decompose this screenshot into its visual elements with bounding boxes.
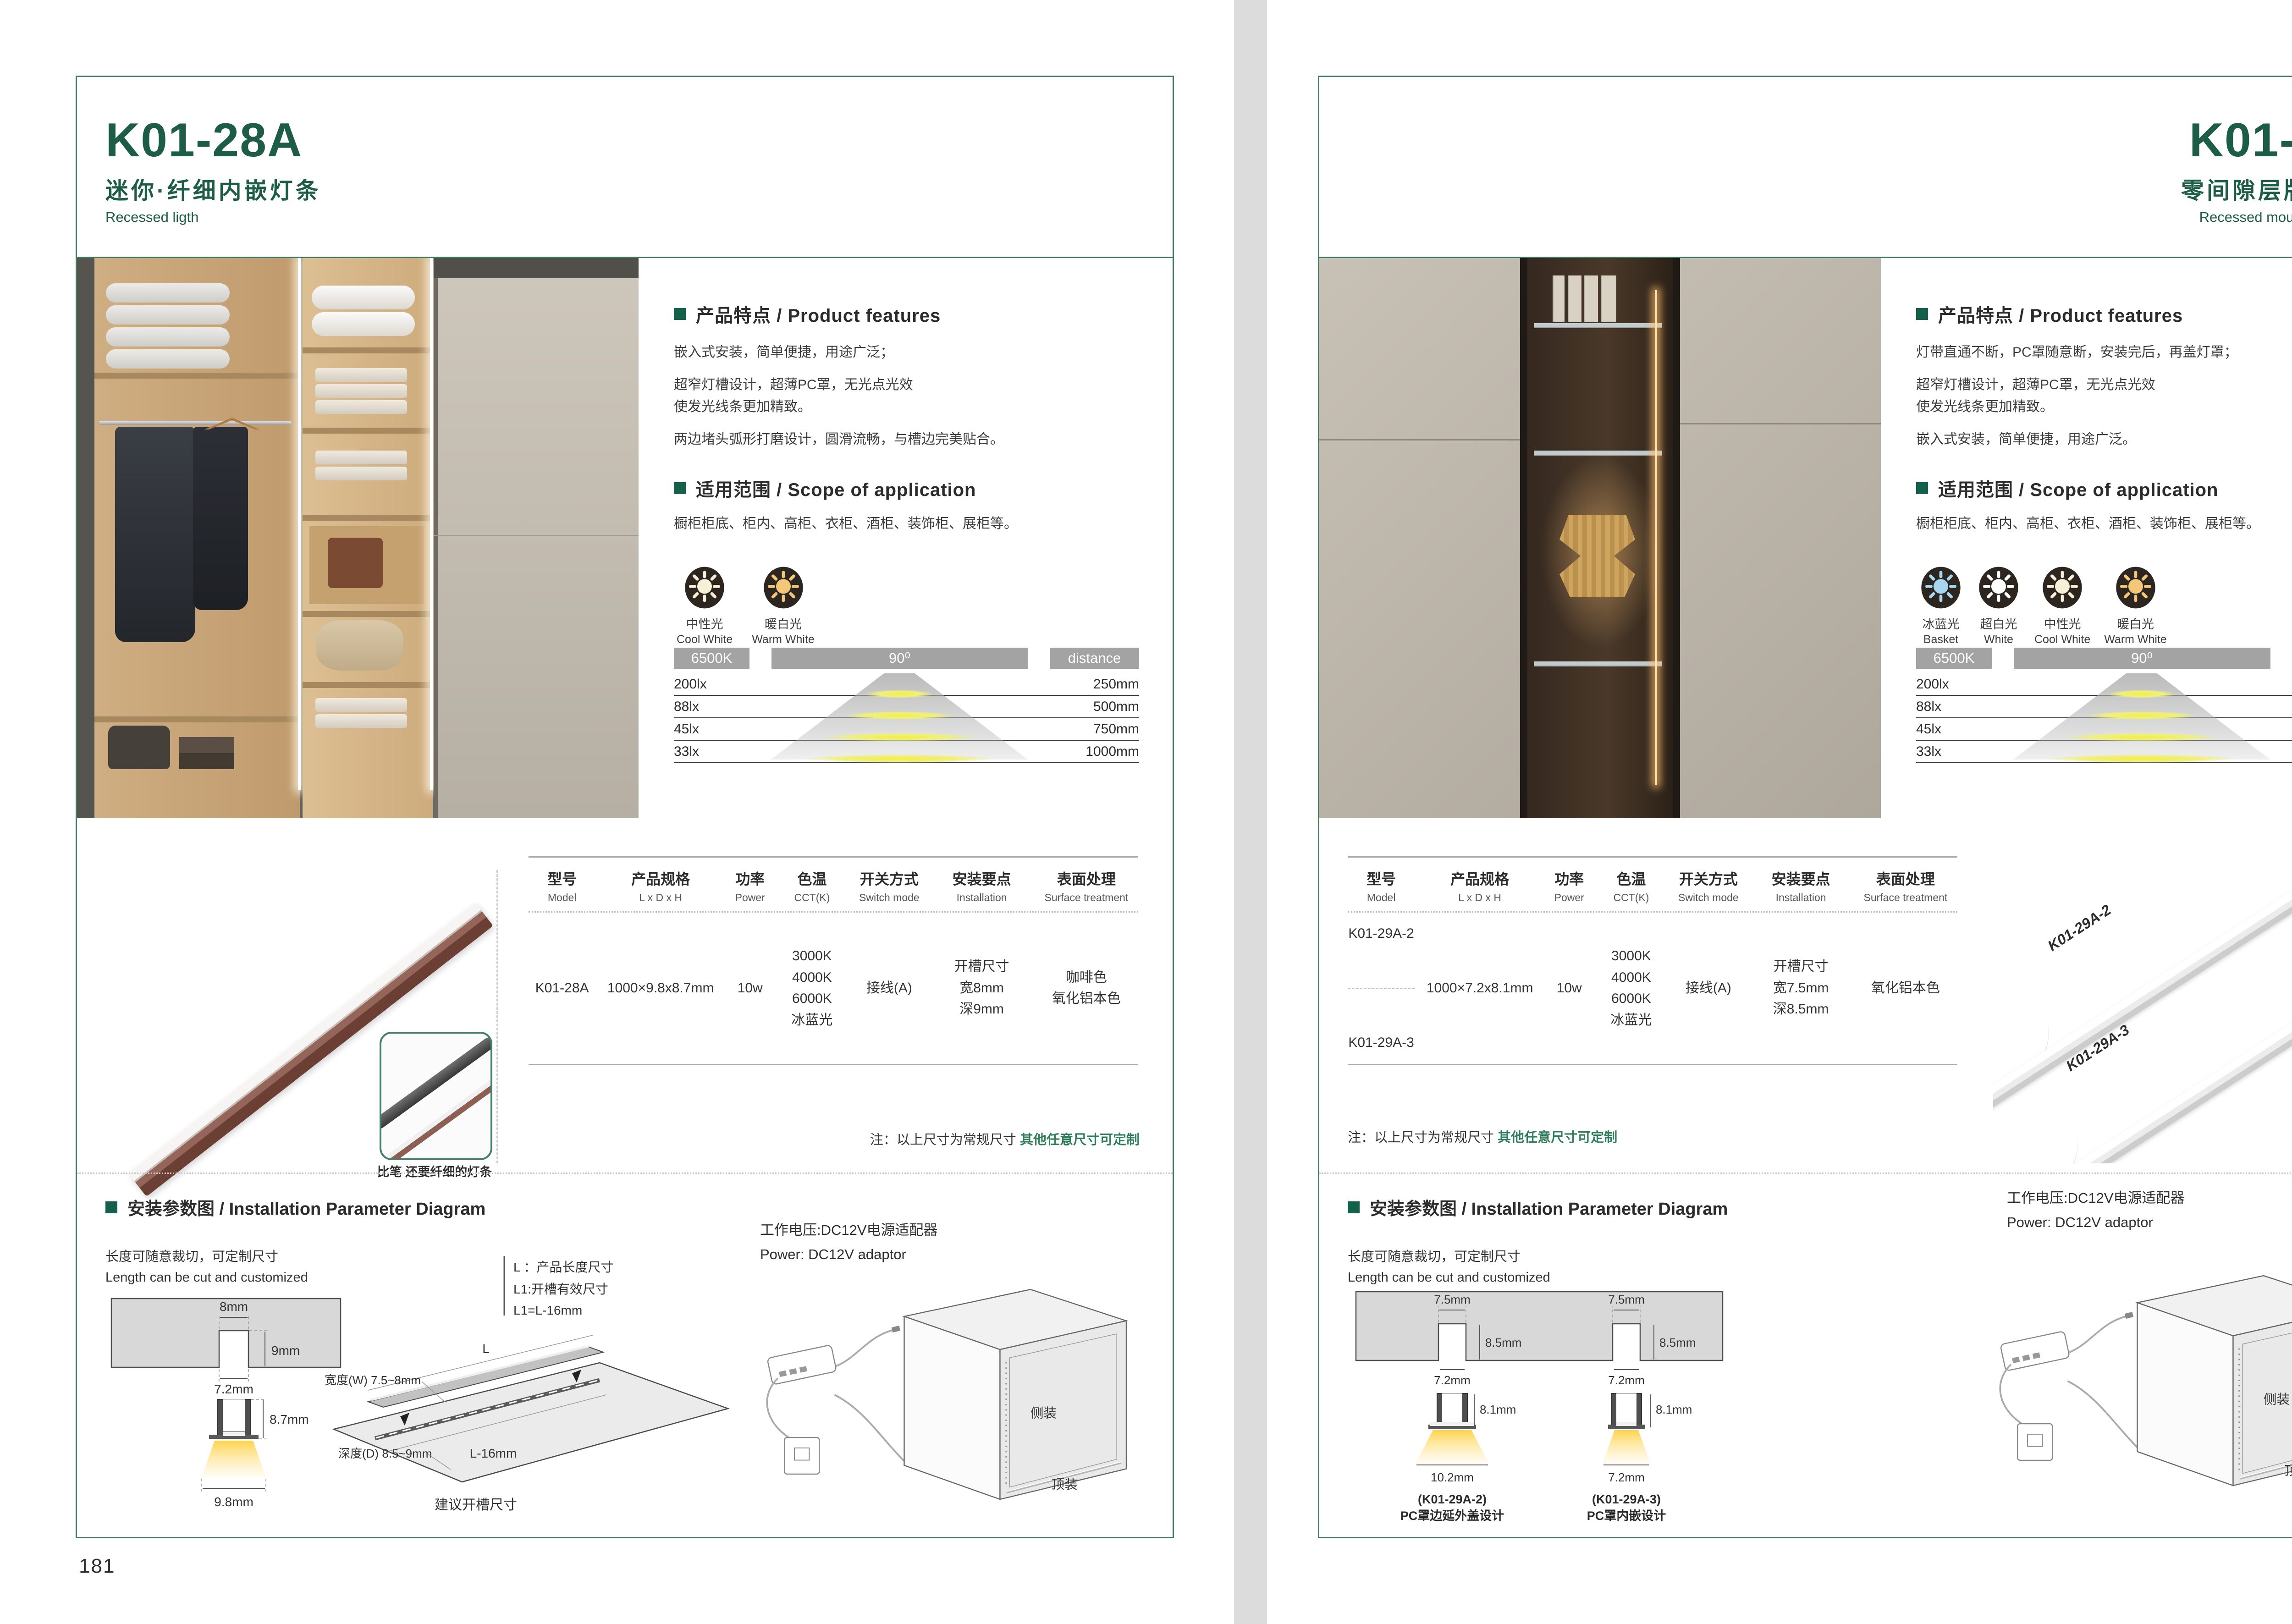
svg-text:L ：产品长度尺寸: L ：产品长度尺寸 bbox=[513, 1260, 613, 1274]
page-title: K01-29A bbox=[2181, 116, 2292, 164]
spec-row: K01-28A 1000×9.8x8.7mm 10w 3000K4000K 60… bbox=[529, 913, 1138, 1065]
bulb-icon bbox=[1977, 566, 2021, 610]
svg-text:8.5mm: 8.5mm bbox=[1659, 1336, 1696, 1349]
icon-label-cn: 中性光 bbox=[2034, 614, 2090, 632]
spec-row: K01-29A-2 K01-29A-3 1000×7.2x8.1mm 10w 3… bbox=[1348, 913, 1957, 1065]
svg-text:PC罩边延外盖设计: PC罩边延外盖设计 bbox=[1400, 1509, 1504, 1523]
icon-label-en: Cool White bbox=[2034, 633, 2090, 646]
svg-text:PC罩内嵌设计: PC罩内嵌设计 bbox=[1587, 1509, 1666, 1523]
light-color-icons: 冰蓝光 Basket 超白光 White 中性光 Cool White 暖白光 … bbox=[1919, 566, 2186, 646]
svg-text:深度(D) 8.5~9mm: 深度(D) 8.5~9mm bbox=[338, 1447, 432, 1460]
product-photo bbox=[77, 258, 639, 818]
svg-text:7.5mm: 7.5mm bbox=[1434, 1293, 1470, 1306]
cct-bar: 6500K bbox=[1916, 648, 1992, 669]
bulb-icon bbox=[1919, 566, 1963, 610]
features-text: 灯带直通不断，PC罩随意断，安装完后，再盖灯罩； 超窄灯槽设计，超薄PC罩，无光… bbox=[1916, 342, 2292, 450]
install-title: 安装参数图 / Installation Parameter Diagram bbox=[105, 1195, 485, 1220]
install-title: 安装参数图 / Installation Parameter Diagram bbox=[1348, 1195, 1728, 1220]
scope-text: 橱柜柜底、柜内、高柜、衣柜、酒柜、装饰柜、展柜等。 bbox=[1916, 513, 2292, 535]
icon-label-cn: 中性光 bbox=[677, 614, 733, 632]
catalog-page-181: K01-28A 迷你·纤细内嵌灯条 Recessed ligth bbox=[76, 76, 1174, 1538]
icon-label-en: Warm White bbox=[2104, 633, 2167, 646]
icon-label-cn: 暖白光 bbox=[752, 614, 815, 632]
icon-label-cn: 超白光 bbox=[1977, 614, 2021, 632]
icon-label-en: Warm White bbox=[752, 633, 815, 646]
power-note: 工作电压:DC12V电源适配器 Power: DC12V adaptor bbox=[760, 1218, 938, 1266]
spec-note: 注：以上尺寸为常规尺寸 其他任意尺寸可定制 bbox=[870, 1129, 1140, 1148]
svg-text:9.8mm: 9.8mm bbox=[214, 1495, 253, 1509]
scope-title: 适用范围 / Scope of application bbox=[1916, 475, 2219, 501]
svg-text:建议开槽尺寸: 建议开槽尺寸 bbox=[435, 1497, 517, 1513]
icon-label-cn: 冰蓝光 bbox=[1919, 614, 1963, 632]
spec-note: 注：以上尺寸为常规尺寸 其他任意尺寸可定制 bbox=[1348, 1127, 1617, 1146]
groove-diagram: L ：产品长度尺寸 L1:开槽有效尺寸 L1=L-16mm L L-16mm 宽… bbox=[325, 1250, 737, 1525]
svg-text:顶装: 顶装 bbox=[2285, 1464, 2292, 1478]
svg-text:L: L bbox=[482, 1342, 490, 1356]
product-image: K01-29A-2 K01-29A-3 bbox=[1993, 792, 2292, 1163]
light-icon-ice-blue: 冰蓝光 Basket bbox=[1919, 566, 1963, 646]
section-bullet-icon bbox=[674, 482, 686, 494]
icon-label-en: Basket bbox=[1919, 633, 1963, 646]
photometric-table: 6500K 90⁰ distance 200lx250mm 88lx500mm … bbox=[674, 648, 1139, 763]
bulb-icon bbox=[752, 566, 815, 610]
strip-label: K01-29A-2 bbox=[2045, 901, 2114, 954]
features-title: 产品特点 / Product features bbox=[674, 301, 941, 327]
svg-text:7.2mm: 7.2mm bbox=[1608, 1470, 1644, 1484]
svg-text:(K01-29A-2): (K01-29A-2) bbox=[1418, 1492, 1487, 1506]
bulb-icon bbox=[2034, 566, 2090, 610]
section-divider bbox=[77, 1173, 1173, 1174]
pen-image bbox=[380, 1035, 492, 1131]
catalog-page-182: K01-29A 零间隙层版条形灯 Recessed mounting LED l… bbox=[1318, 76, 2292, 1538]
svg-text:(K01-29A-3): (K01-29A-3) bbox=[1592, 1492, 1661, 1506]
page-number: 181 bbox=[79, 1555, 115, 1578]
light-icon-cool-white: 中性光 Cool White bbox=[2034, 566, 2090, 646]
svg-text:9mm: 9mm bbox=[271, 1343, 300, 1358]
icon-label-cn: 暖白光 bbox=[2104, 614, 2167, 632]
angle-bar: 90⁰ bbox=[771, 648, 1028, 669]
features-text: 嵌入式安装，简单便捷，用途广泛； 超窄灯槽设计，超薄PC罩，无光点光效 使发光线… bbox=[674, 342, 1155, 450]
svg-text:侧装: 侧装 bbox=[1030, 1406, 1057, 1420]
svg-text:10.2mm: 10.2mm bbox=[1431, 1470, 1474, 1484]
svg-text:宽度(W) 7.5~8mm: 宽度(W) 7.5~8mm bbox=[325, 1373, 421, 1387]
svg-text:侧装: 侧装 bbox=[2264, 1392, 2290, 1407]
light-icon-cool-white: 中性光 Cool White bbox=[677, 566, 733, 646]
svg-text:L1=L-16mm: L1=L-16mm bbox=[513, 1303, 582, 1317]
svg-text:L1:开槽有效尺寸: L1:开槽有效尺寸 bbox=[513, 1282, 608, 1296]
product-image-caption: 比笔 还要纤细的灯条 bbox=[352, 1162, 517, 1180]
svg-text:顶装: 顶装 bbox=[1052, 1477, 1078, 1492]
light-icon-warm-white: 暖白光 Warm White bbox=[2104, 566, 2167, 646]
svg-text:8.1mm: 8.1mm bbox=[1656, 1403, 1692, 1416]
vertical-divider bbox=[496, 870, 498, 1163]
svg-text:8.1mm: 8.1mm bbox=[1480, 1403, 1516, 1416]
svg-text:L-16mm: L-16mm bbox=[470, 1446, 517, 1460]
section-bullet-icon bbox=[1916, 482, 1928, 494]
comparison-inset bbox=[380, 1032, 492, 1160]
cabinet-diagram: 侧装 顶装 bbox=[1975, 1250, 2292, 1512]
page-subtitle-en: Recessed ligth bbox=[105, 209, 321, 226]
light-icon-white: 超白光 White bbox=[1977, 566, 2021, 646]
svg-text:8.7mm: 8.7mm bbox=[270, 1412, 309, 1426]
svg-text:7.2mm: 7.2mm bbox=[1608, 1373, 1644, 1387]
section-bullet-icon bbox=[1348, 1201, 1360, 1213]
cross-section-diagram: 8mm 9mm 7.2mm 8.7mm 9.8mm bbox=[105, 1287, 361, 1530]
page-header: K01-28A 迷你·纤细内嵌灯条 Recessed ligth bbox=[105, 116, 321, 226]
svg-text:7.2mm: 7.2mm bbox=[214, 1382, 253, 1396]
svg-text:8mm: 8mm bbox=[220, 1299, 248, 1314]
cabinet-diagram: 侧装 顶装 bbox=[742, 1264, 1145, 1525]
bulb-icon bbox=[677, 566, 733, 610]
page-gutter bbox=[1234, 0, 1267, 1624]
cct-bar: 6500K bbox=[674, 648, 749, 669]
svg-text:7.2mm: 7.2mm bbox=[1434, 1373, 1470, 1387]
page-title: K01-28A bbox=[105, 116, 321, 164]
icon-label-en: White bbox=[1977, 633, 2021, 646]
spec-table: 型号Model 产品规格L x D x H 功率Power 色温CCT(K) 开… bbox=[1348, 856, 1957, 1065]
led-strip-glow bbox=[298, 258, 301, 790]
cut-note: 长度可随意裁切，可定制尺寸 Length can be cut and cust… bbox=[105, 1247, 308, 1288]
section-bullet-icon bbox=[674, 308, 686, 320]
section-bullet-icon bbox=[1916, 308, 1928, 320]
light-icon-warm-white: 暖白光 Warm White bbox=[752, 566, 815, 646]
page-subtitle-en: Recessed mounting LED light bbox=[2181, 209, 2292, 226]
bulb-icon bbox=[2104, 566, 2167, 610]
power-note: 工作电压:DC12V电源适配器 Power: DC12V adaptor bbox=[2007, 1186, 2185, 1234]
scope-text: 橱柜柜底、柜内、高柜、衣柜、酒柜、装饰柜、展柜等。 bbox=[674, 513, 1155, 535]
scope-title: 适用范围 / Scope of application bbox=[674, 475, 976, 501]
svg-text:7.5mm: 7.5mm bbox=[1608, 1293, 1644, 1306]
svg-text:8.5mm: 8.5mm bbox=[1485, 1336, 1521, 1349]
page-subtitle-cn: 迷你·纤细内嵌灯条 bbox=[105, 172, 321, 205]
icon-label-en: Cool White bbox=[677, 633, 733, 646]
page-header: K01-29A 零间隙层版条形灯 Recessed mounting LED l… bbox=[2181, 116, 2292, 226]
light-color-icons: 中性光 Cool White 暖白光 Warm White bbox=[677, 566, 834, 646]
page-subtitle-cn: 零间隙层版条形灯 bbox=[2181, 172, 2292, 205]
led-strip-glow bbox=[1655, 290, 1657, 785]
product-photo bbox=[1319, 258, 1881, 818]
angle-bar: 90⁰ bbox=[2014, 648, 2270, 669]
spec-table: 型号Model 产品规格L x D x H 功率Power 色温CCT(K) 开… bbox=[529, 856, 1138, 1065]
distance-bar: distance bbox=[1050, 648, 1139, 669]
product-image: 比笔 还要纤细的灯条 bbox=[105, 927, 526, 1184]
features-title: 产品特点 / Product features bbox=[1916, 301, 2183, 327]
photometric-table: 6500K 90⁰ distance 200lx250mm 88lx500mm … bbox=[1916, 648, 2292, 763]
led-strip-glow bbox=[430, 258, 433, 790]
model-divider bbox=[1348, 988, 1415, 989]
cross-section-diagram: 7.5mm 8.5mm 7.2mm 8.1mm 10.2mm (K01-29A-… bbox=[1347, 1278, 1750, 1528]
section-bullet-icon bbox=[105, 1201, 117, 1213]
section-divider bbox=[1319, 1173, 2292, 1174]
